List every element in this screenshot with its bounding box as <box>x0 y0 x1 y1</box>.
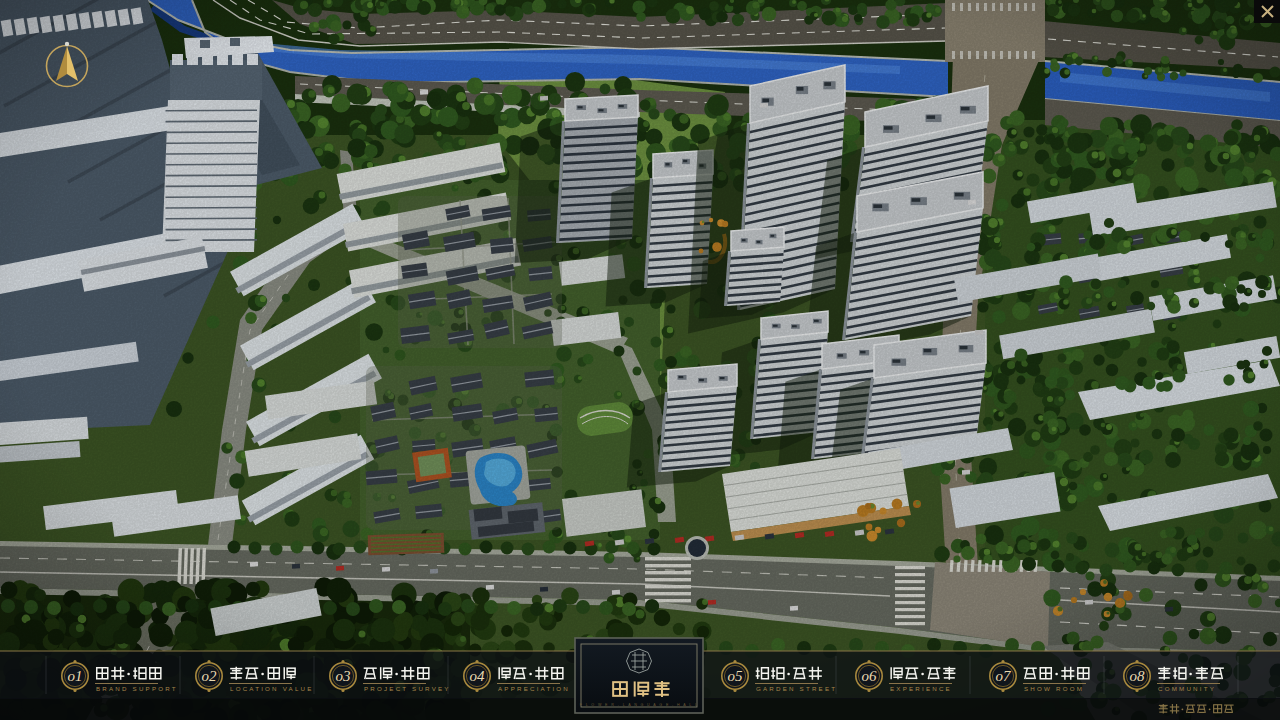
svg-text:APPRECIATION: APPRECIATION <box>498 685 570 692</box>
svg-text:BRAND SUPPORT: BRAND SUPPORT <box>96 685 178 692</box>
svg-text:PROJECT SURVEY: PROJECT SURVEY <box>364 685 451 692</box>
svg-text:o1: o1 <box>68 668 83 684</box>
svg-text:LOCATION VALUE: LOCATION VALUE <box>230 685 314 692</box>
svg-text:o8: o8 <box>1130 668 1146 684</box>
svg-text:o2: o2 <box>202 668 218 684</box>
svg-text:COMMUNITY: COMMUNITY <box>1158 685 1216 692</box>
svg-text:o4: o4 <box>470 668 486 684</box>
svg-text:o3: o3 <box>336 668 351 684</box>
svg-text:F L O W E R - L A N G U A G E: F L O W E R - L A N G U A G E - H A L L <box>580 703 699 707</box>
svg-text:o6: o6 <box>862 668 878 684</box>
svg-text:SHOW ROOM: SHOW ROOM <box>1024 685 1084 692</box>
svg-text:GARDEN STREET: GARDEN STREET <box>756 685 837 692</box>
svg-text:o5: o5 <box>728 668 744 684</box>
svg-text:o7: o7 <box>996 668 1013 684</box>
svg-text:EXPERIENCE: EXPERIENCE <box>890 685 952 692</box>
